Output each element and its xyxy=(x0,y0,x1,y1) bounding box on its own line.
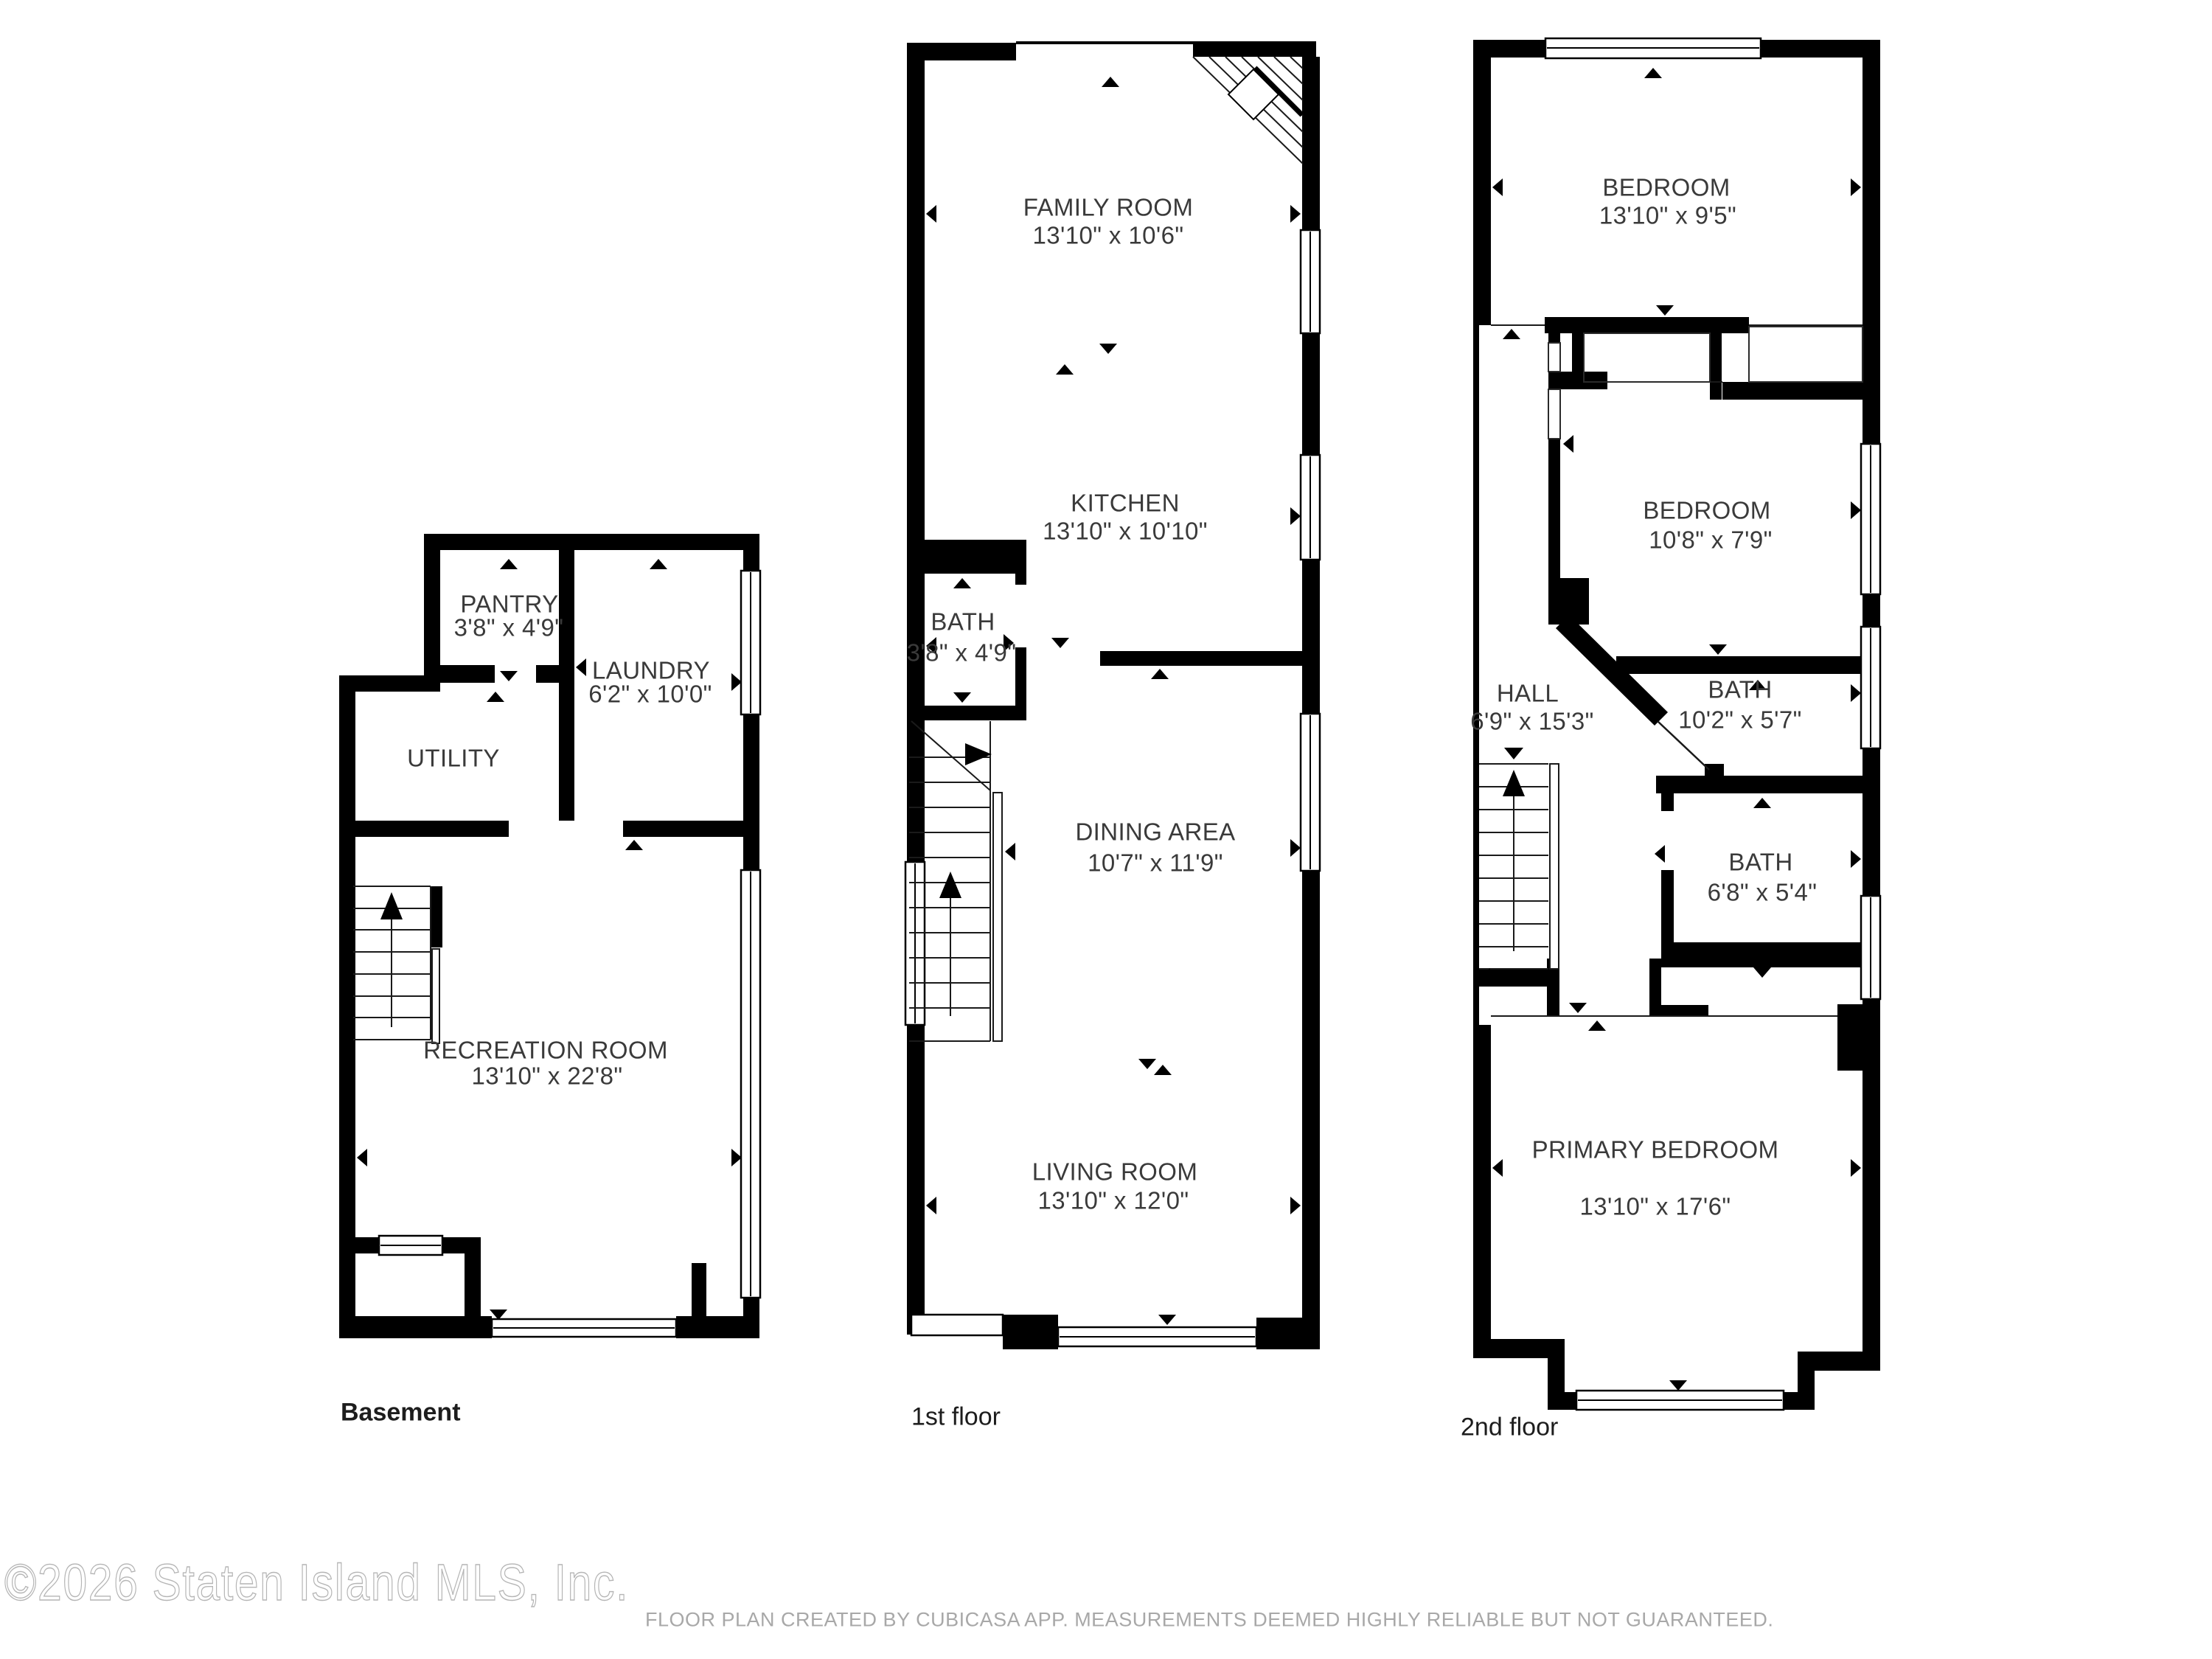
room-name-pantry: PANTRY xyxy=(460,592,558,616)
room-dims-family-room: 13'10" x 10'6" xyxy=(1033,223,1184,248)
stairs-up-arrow-first xyxy=(939,872,961,898)
room-name-hall: HALL xyxy=(1497,681,1559,706)
closet-outlines xyxy=(1584,327,1863,382)
room-name-recreation: RECREATION ROOM xyxy=(423,1038,668,1062)
room-dims-bath-first: 3'8" x 4'9" xyxy=(907,641,1017,665)
room-dims-bedroom-mid: 10'8" x 7'9" xyxy=(1649,528,1772,552)
floor-title-first: 1st floor xyxy=(911,1403,1001,1432)
stairs-down-arrow-second xyxy=(1504,748,1523,759)
room-name-bath-lower: BATH xyxy=(1728,850,1792,874)
room-name-bath-upper: BATH xyxy=(1708,678,1772,702)
room-dims-living-room: 13'10" x 12'0" xyxy=(1038,1189,1189,1213)
stairs-up-arrow-second xyxy=(1503,770,1525,796)
cubicasa-disclaimer: FLOOR PLAN CREATED BY CUBICASA APP. MEAS… xyxy=(645,1609,1773,1632)
room-dims-bath-upper: 10'2" x 5'7" xyxy=(1678,708,1801,732)
room-name-laundry: LAUNDRY xyxy=(592,658,710,683)
room-dims-hall: 6'9" x 15'3" xyxy=(1470,709,1593,734)
room-name-family-room: FAMILY ROOM xyxy=(1023,195,1194,220)
room-name-utility: UTILITY xyxy=(407,746,500,771)
room-name-bedroom-top: BEDROOM xyxy=(1602,175,1730,200)
room-dims-dining-area: 10'7" x 11'9" xyxy=(1088,851,1223,875)
mls-watermark: ©2026 Staten Island MLS, Inc. xyxy=(4,1553,629,1612)
floor-plan-page: PANTRY 3'8" x 4'9" LAUNDRY 6'2" x 10'0" … xyxy=(0,0,2212,1659)
floor-title-second: 2nd floor xyxy=(1461,1413,1558,1442)
stairs-up-arrow-basement xyxy=(380,892,403,919)
room-dims-kitchen: 13'10" x 10'10" xyxy=(1043,519,1208,543)
room-name-bath-first: BATH xyxy=(931,610,995,634)
room-name-bedroom-mid: BEDROOM xyxy=(1643,498,1770,523)
stair-landing-square xyxy=(1228,69,1279,119)
room-dims-recreation: 13'10" x 22'8" xyxy=(472,1064,623,1088)
room-dims-primary-bedroom: 13'10" x 17'6" xyxy=(1580,1194,1731,1219)
room-name-dining-area: DINING AREA xyxy=(1075,820,1235,844)
room-dims-laundry: 6'2" x 10'0" xyxy=(588,682,712,706)
room-dims-bath-lower: 6'8" x 5'4" xyxy=(1708,880,1818,905)
door-panels xyxy=(1548,343,1560,439)
room-name-living-room: LIVING ROOM xyxy=(1032,1160,1197,1184)
room-dims-pantry: 3'8" x 4'9" xyxy=(454,616,564,640)
floor-title-basement: Basement xyxy=(341,1399,461,1427)
room-name-primary-bedroom: PRIMARY BEDROOM xyxy=(1532,1138,1779,1162)
basement-plan xyxy=(339,534,759,1338)
room-dims-bedroom-top: 13'10" x 9'5" xyxy=(1599,204,1736,228)
room-name-kitchen: KITCHEN xyxy=(1071,491,1180,515)
stairs-entry-arrow-first xyxy=(965,743,992,765)
